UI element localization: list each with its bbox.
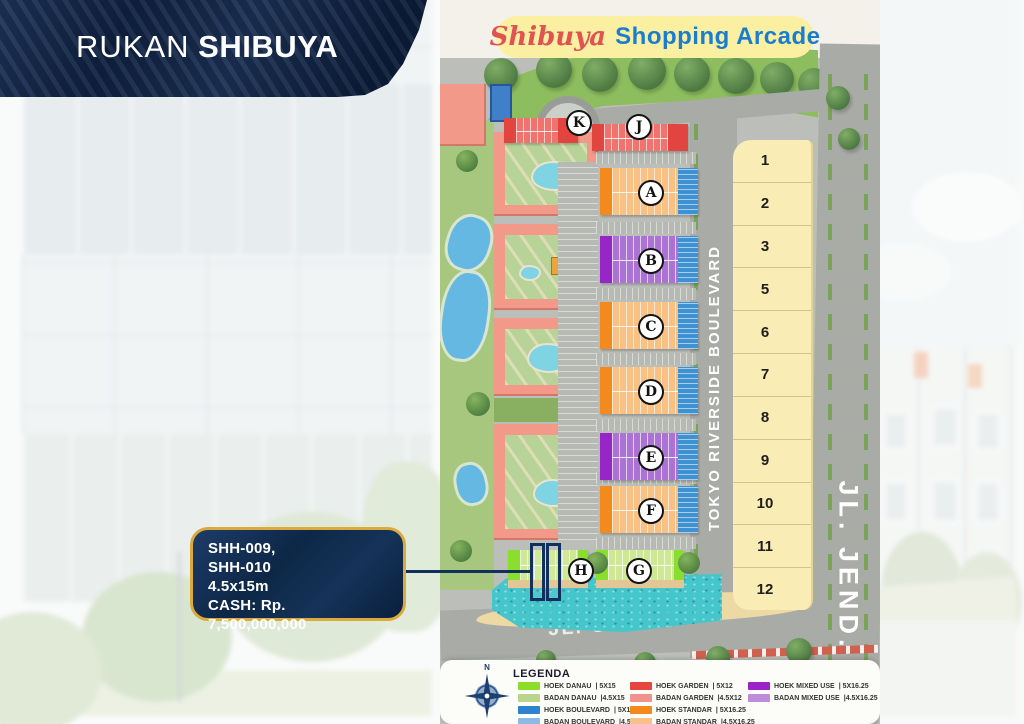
parking-row <box>596 152 696 164</box>
block-a: A <box>600 168 698 215</box>
unit-number-line2: SHH-010 <box>208 558 388 577</box>
legend-item: BADAN GARDEN |4.5X12 <box>630 693 742 703</box>
flyer: K J A B C D <box>0 0 1024 724</box>
tree <box>838 128 860 150</box>
legend-swatch <box>748 694 770 702</box>
block-d-badge: D <box>638 379 664 405</box>
block-b: B <box>600 236 698 283</box>
parking-row <box>596 537 696 549</box>
lot-8: 8 <box>733 397 811 440</box>
block-d-hoek <box>600 367 612 414</box>
legend-swatch <box>630 682 652 690</box>
compass-north-label: N <box>460 664 514 672</box>
block-c: C <box>600 302 698 349</box>
legend-item: BADAN MIXED USE |4.5X16.25 <box>748 693 878 703</box>
legend-item: HOEK BOULEVARD | 5X15 <box>518 705 634 715</box>
lot-12: 12 <box>733 568 811 610</box>
block-a-hoek <box>600 168 612 215</box>
unit-size: 4.5x15m <box>208 577 388 596</box>
courtyard-pool <box>519 265 541 281</box>
tree <box>718 58 754 94</box>
parking-row <box>596 419 696 431</box>
legend-swatch <box>518 718 540 724</box>
lot-3: 3 <box>733 226 811 269</box>
highlighted-unit <box>530 543 545 601</box>
photo-fade-overlay <box>880 0 1024 724</box>
compass-rose-icon: N <box>460 664 514 722</box>
legend-swatch <box>518 682 540 690</box>
legend-item: HOEK GARDEN | 5X12 <box>630 681 733 691</box>
compass-rose-graphic <box>463 672 511 720</box>
block-f-badge: F <box>638 498 664 524</box>
lot-column: 1 2 3 5 6 7 8 9 10 11 12 <box>733 140 813 610</box>
parking-row <box>596 222 696 234</box>
block-e-badge: E <box>638 445 664 471</box>
price-callout: SHH-009, SHH-010 4.5x15m CASH: Rp. 7,500… <box>190 527 406 621</box>
callout-pointer-line <box>404 570 532 573</box>
lot-5: 5 <box>733 268 811 311</box>
bush <box>466 392 490 416</box>
bush <box>678 552 700 574</box>
tree <box>826 86 850 110</box>
arcade-title-pill: Shibuya Shopping Arcade <box>496 16 814 58</box>
block-e-hoek <box>600 433 612 480</box>
brand-title: RUKAN SHIBUYA <box>76 29 338 65</box>
bush <box>450 540 472 562</box>
lot-9: 9 <box>733 440 811 483</box>
block-c-hoek <box>600 302 612 349</box>
brand-title-light: RUKAN <box>76 29 190 64</box>
lot-7: 7 <box>733 354 811 397</box>
block-g-badge: G <box>626 558 652 584</box>
block-j-hoek-end <box>668 124 688 151</box>
block-b-badge: B <box>638 248 664 274</box>
bush <box>456 150 478 172</box>
parking-row <box>596 288 696 300</box>
lot-6: 6 <box>733 311 811 354</box>
legend-swatch <box>748 682 770 690</box>
legend-item: HOEK MIXED USE | 5X16.25 <box>748 681 869 691</box>
block-j-hoek <box>592 124 604 151</box>
block-h-hoek <box>508 550 520 580</box>
legend-swatch <box>630 706 652 714</box>
road-median-line <box>864 60 868 720</box>
arcade-title-rest: Shopping Arcade <box>615 23 820 51</box>
legend-item: BADAN DANAU |4.5X15 <box>518 693 625 703</box>
boulevard-road-label: TOKYO RIVERSIDE BOULEVARD <box>692 128 736 648</box>
legend-item: HOEK DANAU | 5X15 <box>518 681 616 691</box>
block-h-badge: H <box>568 558 594 584</box>
lot-2: 2 <box>733 183 811 226</box>
block-f-hoek <box>600 486 612 533</box>
block-a-badge: A <box>638 180 664 206</box>
unit-price: CASH: Rp. 7,500,000,000 <box>208 596 388 634</box>
legend-swatch <box>630 718 652 724</box>
lot-10: 10 <box>733 483 811 526</box>
unit-number-line1: SHH-009, <box>208 539 388 558</box>
legend-item: BADAN STANDAR |4.5X16.25 <box>630 717 755 724</box>
road-median-line <box>828 60 832 720</box>
jend-road-label: JL. JEND. <box>833 480 864 651</box>
legend-title: LEGENDA <box>513 668 570 680</box>
legend-item: HOEK STANDAR | 5X16.25 <box>630 705 746 715</box>
site-plan-map: K J A B C D <box>440 0 880 724</box>
block-d: D <box>600 367 698 414</box>
parking-row <box>596 353 696 365</box>
legend-swatch <box>518 694 540 702</box>
block-f: F <box>600 486 698 533</box>
tree <box>582 56 618 92</box>
legend-swatch <box>630 694 652 702</box>
tree <box>674 56 710 92</box>
lot-1: 1 <box>733 140 811 183</box>
building-corner <box>440 84 486 146</box>
block-b-hoek <box>600 236 612 283</box>
highlighted-units <box>530 543 561 601</box>
block-e: E <box>600 433 698 480</box>
sport-court <box>490 84 512 122</box>
block-c-badge: C <box>638 314 664 340</box>
block-k-units <box>516 118 558 143</box>
legend-swatch <box>518 706 540 714</box>
block-k-hoek <box>504 118 516 143</box>
brand-banner: RUKAN SHIBUYA <box>0 0 432 97</box>
lot-11: 11 <box>733 525 811 568</box>
parking-lane <box>558 162 598 540</box>
highlighted-unit <box>546 543 561 601</box>
block-j-badge: J <box>626 114 652 140</box>
block-k-badge: K <box>566 110 592 136</box>
arcade-title-script: Shibuya <box>490 22 607 52</box>
legend-item: BADAN BOULEVARD |4.5X15 <box>518 717 643 724</box>
background-photo-right <box>880 0 1024 724</box>
brand-title-bold: SHIBUYA <box>198 29 338 64</box>
